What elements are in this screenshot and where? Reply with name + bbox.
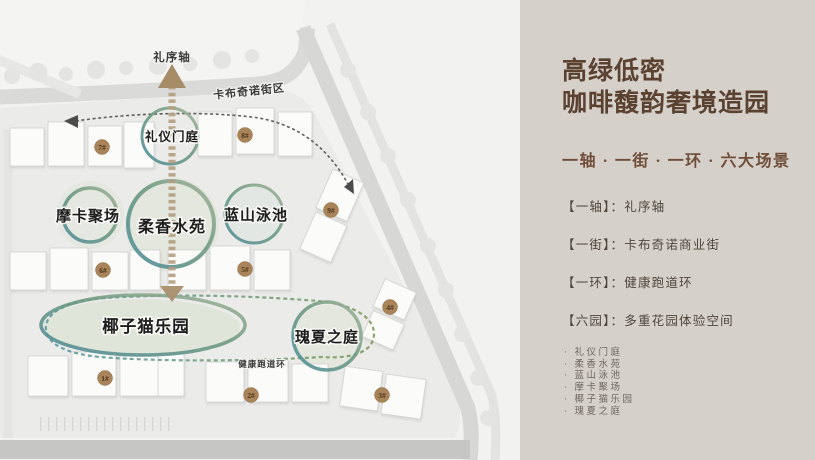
svg-text:3#: 3# — [378, 391, 386, 400]
garden-item: · 蓝山泳池 — [564, 371, 795, 382]
feature-list: 【一轴】：礼序轴 【一街】：卡布奇诺商业街 【一环】：健康跑道环 【六园】：多重… — [562, 196, 795, 329]
zone-label-mocha-plaza: 摩卡聚场 — [56, 207, 120, 225]
svg-text:7#: 7# — [98, 143, 106, 152]
axis-label: 礼序轴 — [153, 50, 191, 64]
building-cluster-6 — [10, 248, 160, 290]
zone-label-geisha-court: 瑰夏之庭 — [295, 328, 359, 346]
badge-1: 1# — [98, 371, 113, 386]
badge-9: 9# — [324, 203, 339, 218]
zone-label-blue-mountain-pool: 蓝山泳池 — [224, 206, 288, 224]
badge-6: 6# — [96, 263, 111, 278]
svg-text:9#: 9# — [327, 206, 335, 215]
svg-text:8#: 8# — [241, 131, 249, 140]
page-title: 高绿低密 咖啡馥韵奢境造园 — [562, 56, 795, 120]
title-line-2: 咖啡馥韵奢境造园 — [562, 88, 795, 120]
badge-2: 2# — [244, 388, 259, 403]
building-cluster-5 — [168, 246, 290, 290]
feature-item-loop: 【一环】：健康跑道环 — [562, 272, 795, 291]
feature-item-street: 【一街】：卡布奇诺商业街 — [562, 234, 795, 253]
building-cluster-8 — [198, 108, 312, 156]
garden-item: · 柔香水苑 — [564, 360, 795, 371]
garden-item: · 瑰夏之庭 — [564, 407, 795, 418]
badge-4: 4# — [383, 300, 398, 315]
title-line-1: 高绿低密 — [562, 56, 795, 88]
badge-8: 8# — [238, 128, 253, 143]
garden-list: · 礼仪门庭 · 柔香水苑 · 蓝山泳池 · 摩卡聚场 · 椰子猫乐园 · 瑰夏… — [564, 348, 795, 418]
svg-text:6#: 6# — [99, 266, 107, 275]
building-cluster-7 — [10, 122, 154, 168]
zone-label-ceremony-court: 礼仪门庭 — [145, 129, 199, 144]
site-plan-svg: 礼序轴 卡布奇诺街区 健康跑道环 礼仪门庭 摩卡聚场 柔香水苑 蓝山泳池 椰子猫… — [0, 0, 520, 460]
page: 礼序轴 卡布奇诺街区 健康跑道环 礼仪门庭 摩卡聚场 柔香水苑 蓝山泳池 椰子猫… — [0, 0, 815, 460]
badge-3: 3# — [375, 388, 390, 403]
loop-label: 健康跑道环 — [238, 359, 286, 369]
svg-text:1#: 1# — [101, 374, 109, 383]
svg-text:2#: 2# — [247, 391, 255, 400]
badge-5: 5# — [238, 262, 253, 277]
site-plan-map: 礼序轴 卡布奇诺街区 健康跑道环 礼仪门庭 摩卡聚场 柔香水苑 蓝山泳池 椰子猫… — [0, 0, 520, 460]
road-bottom — [0, 440, 470, 459]
svg-text:5#: 5# — [241, 265, 249, 274]
zone-label-soft-water-garden: 柔香水苑 — [137, 217, 206, 236]
garden-item: · 椰子猫乐园 — [564, 395, 795, 406]
garden-item: · 礼仪门庭 — [564, 348, 795, 359]
info-panel: 高绿低密 咖啡馥韵奢境造园 一轴 · 一街 · 一环 · 六大场景 【一轴】：礼… — [520, 0, 815, 460]
zone-label-coconut-cat-park: 椰子猫乐园 — [102, 316, 190, 336]
svg-text:4#: 4# — [386, 303, 394, 312]
badge-7: 7# — [95, 140, 110, 155]
feature-item-axis: 【一轴】：礼序轴 — [562, 196, 795, 215]
subtitle: 一轴 · 一街 · 一环 · 六大场景 — [562, 147, 795, 171]
garden-item: · 摩卡聚场 — [564, 383, 795, 394]
feature-item-gardens: 【六园】：多重花园体验空间 — [562, 310, 795, 329]
